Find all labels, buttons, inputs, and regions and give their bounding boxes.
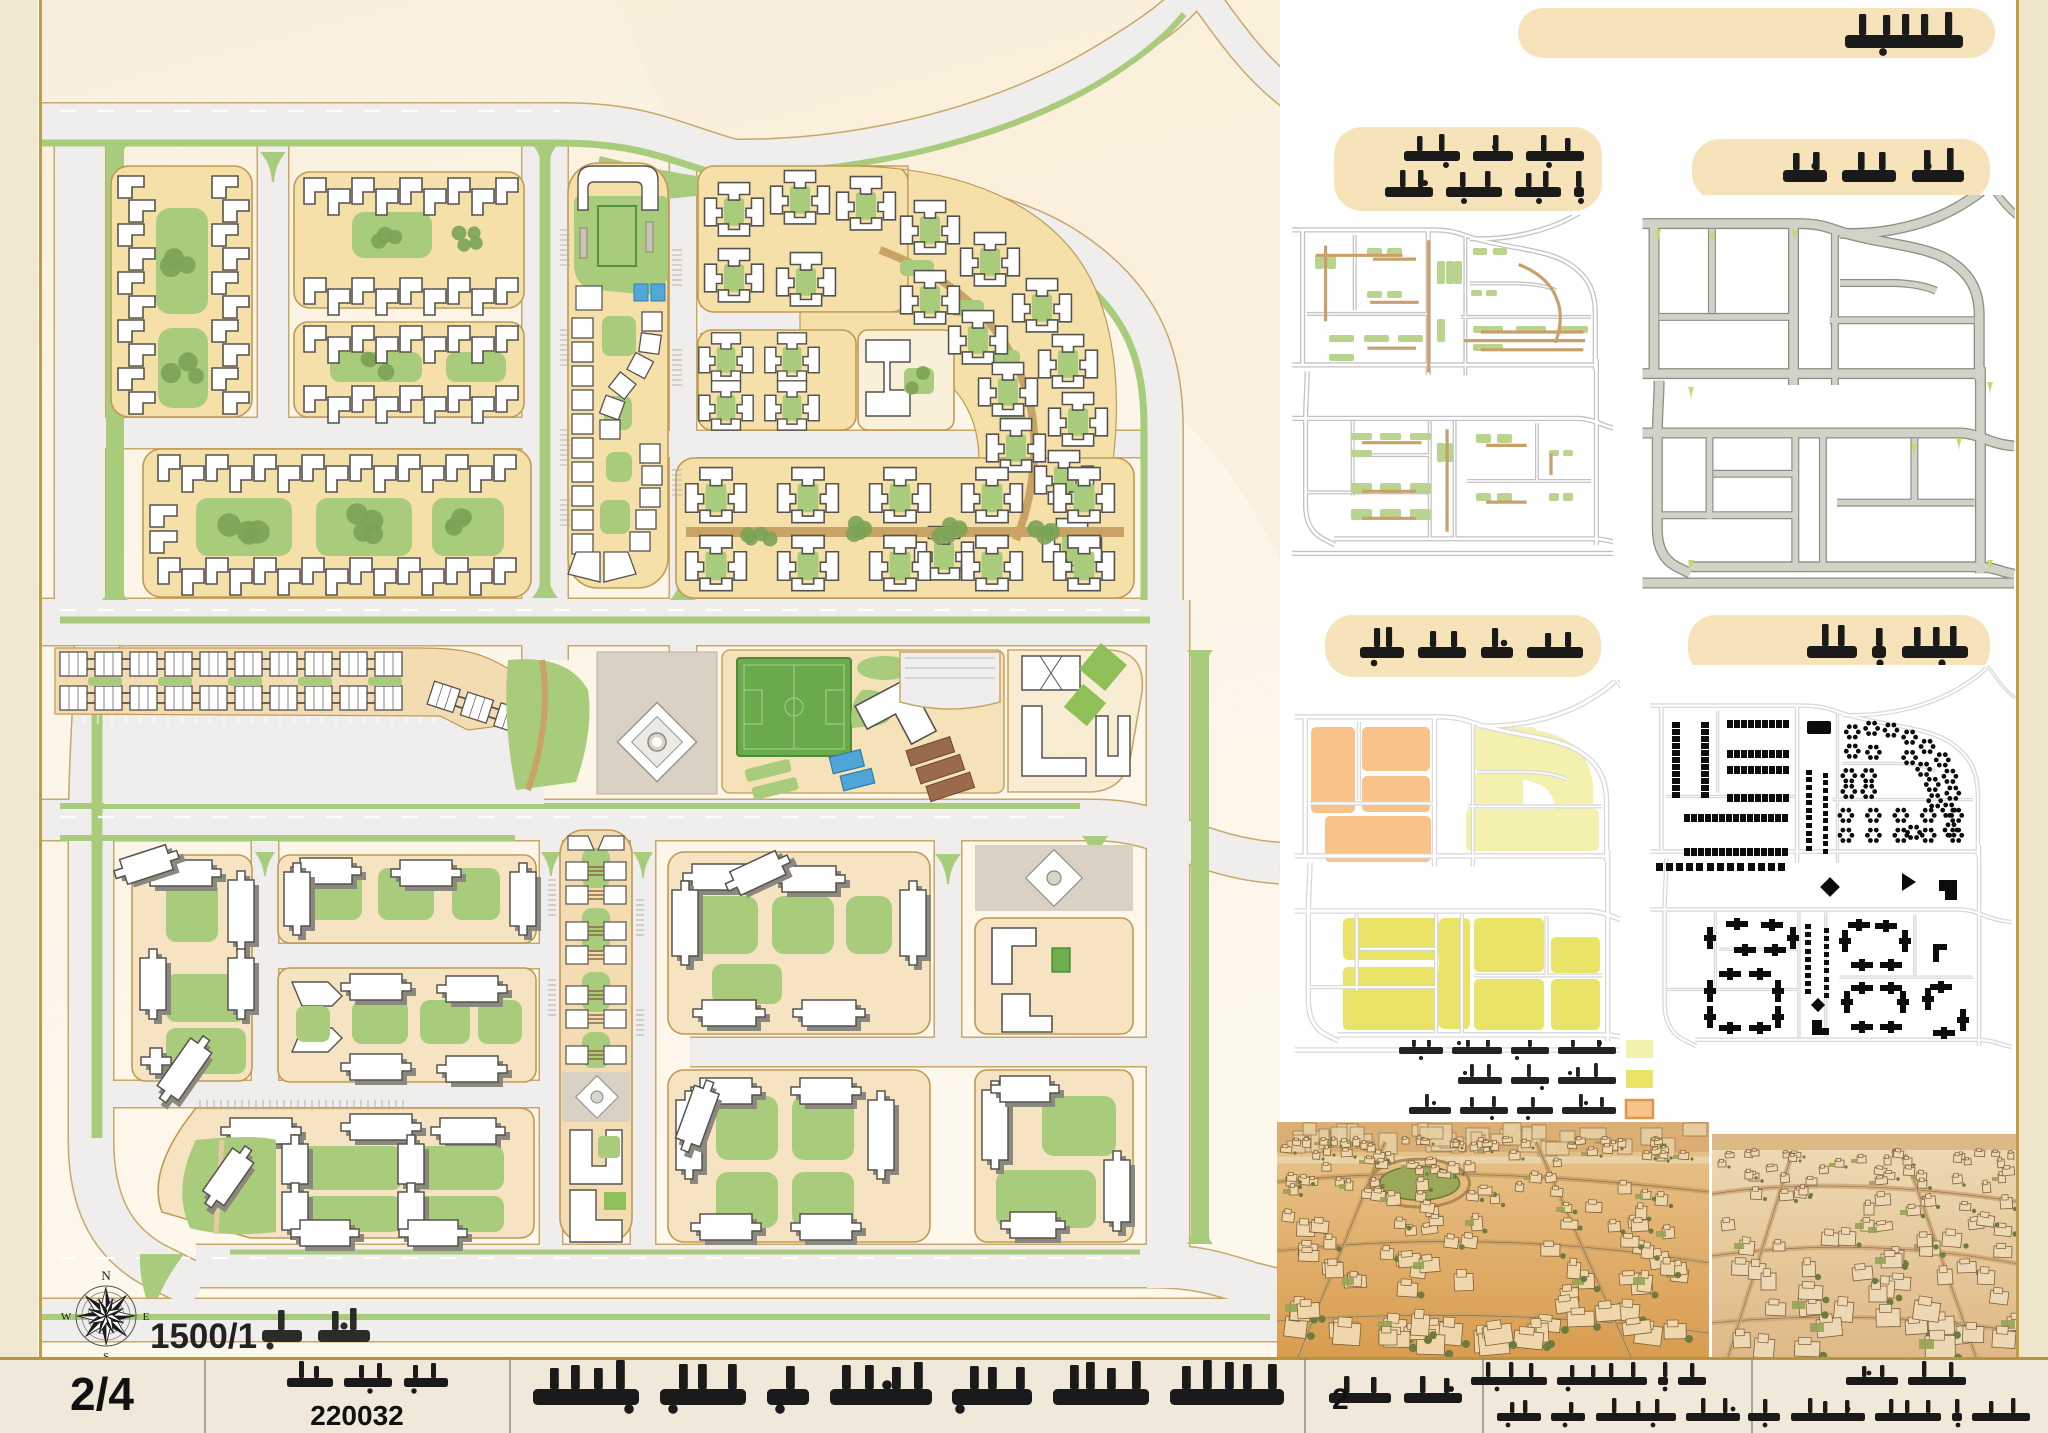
svg-text:W: W [61,1311,72,1323]
svg-text:E: E [143,1311,150,1323]
svg-text:1500/1: 1500/1 [150,1317,257,1356]
svg-text:2: 2 [1332,1383,1349,1416]
svg-text:220032: 220032 [310,1400,403,1431]
svg-text:N: N [101,1268,111,1283]
svg-text:2/4: 2/4 [70,1368,134,1420]
